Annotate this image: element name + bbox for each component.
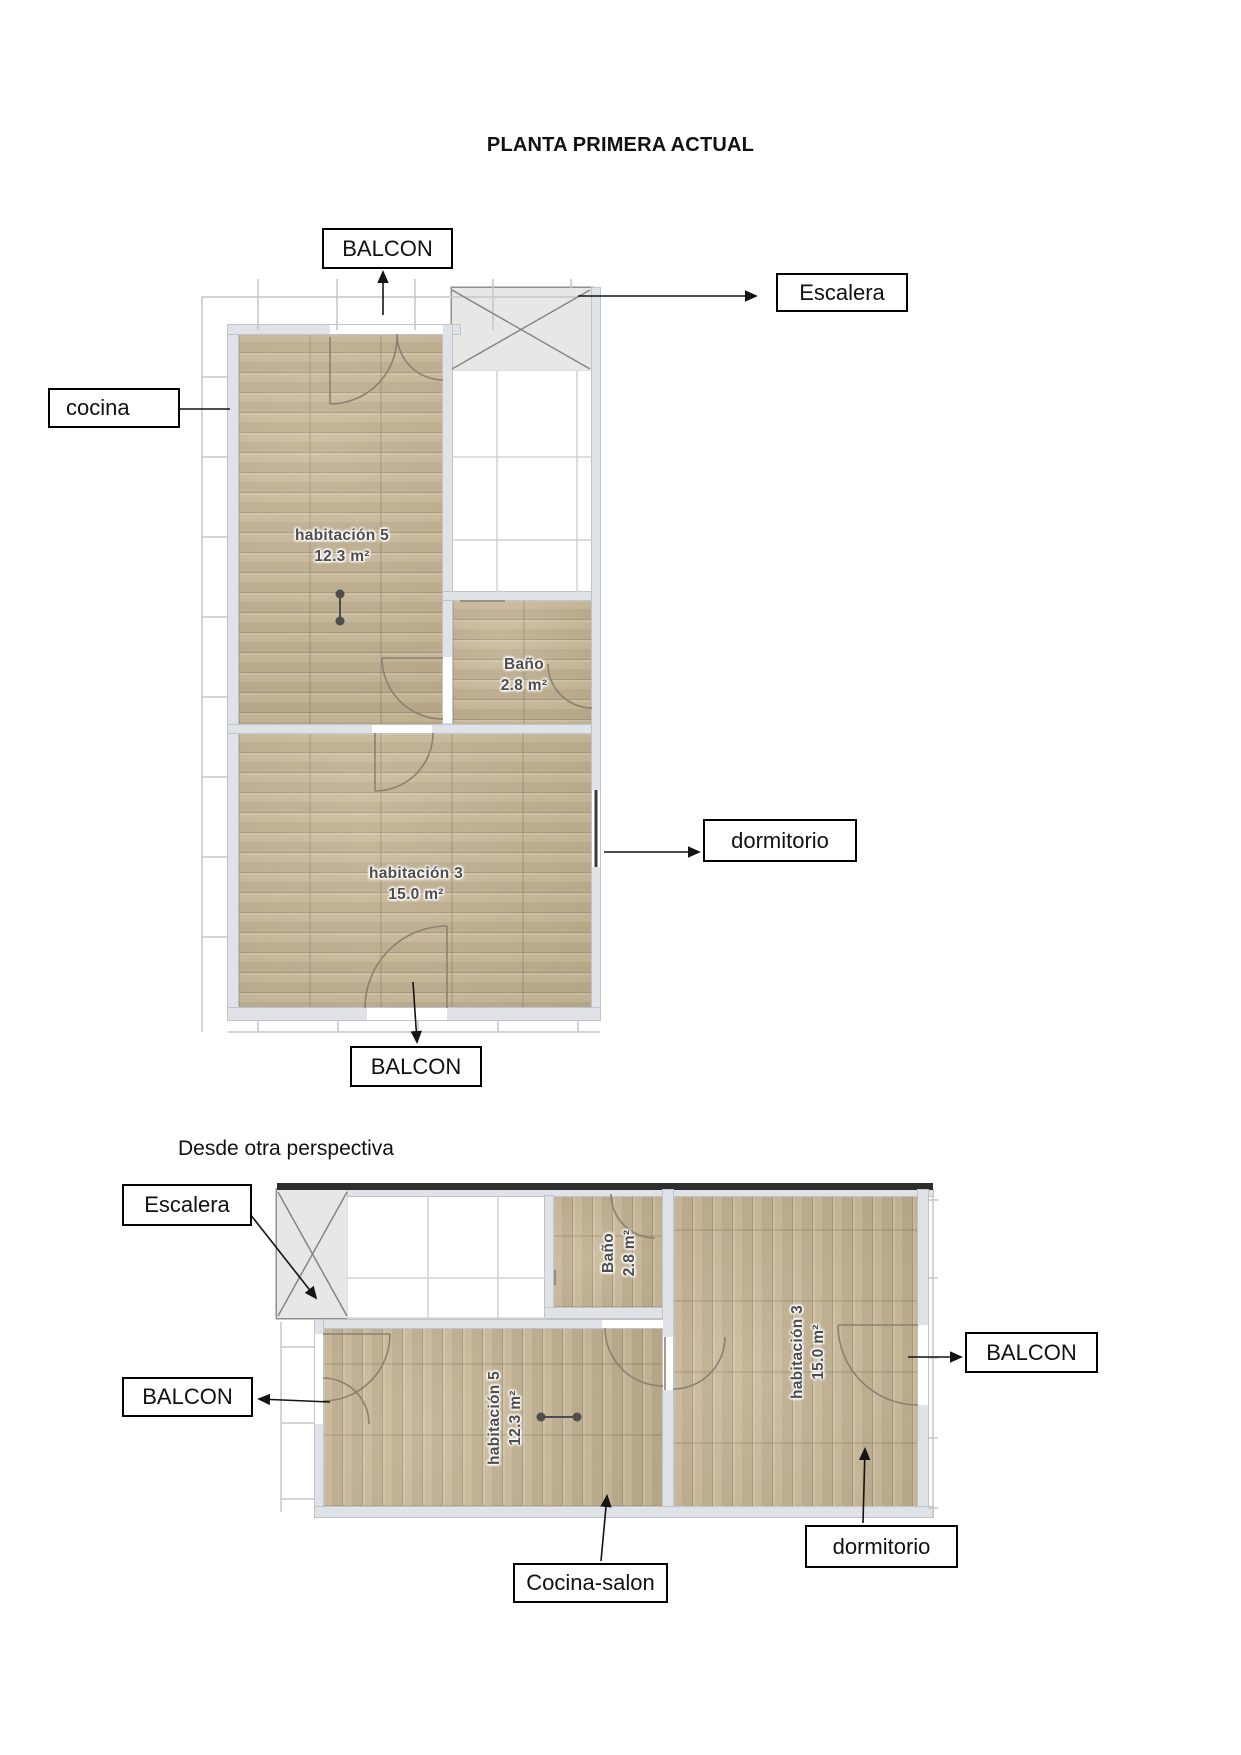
room-area: 2.8 m² (619, 1230, 640, 1277)
room-name: habitación 5 (484, 1371, 505, 1465)
arrow-balcon-left (259, 1399, 330, 1402)
room-name: Baño (501, 654, 548, 675)
room-name: habitación 3 (787, 1305, 808, 1399)
label-box-cocina-salon: Cocina-salon (513, 1563, 668, 1603)
annotation-arrows (180, 272, 961, 1561)
stairs-diagonals-2 (278, 1192, 347, 1316)
room-label-hab3-rotated: habitación 3 15.0 m² (787, 1305, 829, 1399)
label-box-balcon-left: BALCON (122, 1377, 253, 1417)
room-area: 12.3 m² (505, 1371, 526, 1465)
label-box-balcon-right: BALCON (965, 1332, 1098, 1373)
label-box-balcon-top: BALCON (322, 228, 453, 269)
room-area: 15.0 m² (808, 1305, 829, 1399)
stairwell-grid (452, 371, 592, 592)
linework-overlay (0, 0, 1241, 1755)
label-box-dormitorio-plan2: dormitorio (805, 1525, 958, 1568)
room-label-hab3: habitación 3 15.0 m² (369, 863, 463, 905)
room-label-hab5-rotated: habitación 5 12.3 m² (484, 1371, 526, 1465)
room-name: habitación 3 (369, 863, 463, 884)
arrow-balcon-bottom (413, 982, 417, 1042)
room-name: Baño (598, 1230, 619, 1277)
room-label-bano-rotated: Baño 2.8 m² (598, 1230, 640, 1277)
label-box-escalera-plan1: Escalera (776, 273, 908, 312)
light-fixture-plan1 (336, 590, 345, 626)
door-arcs-plan1 (330, 334, 596, 1008)
room-area: 2.8 m² (501, 675, 548, 696)
label-box-cocina: cocina (48, 388, 180, 428)
document-page: PLANTA PRIMERA ACTUAL (0, 0, 1241, 1755)
stairwell-grid-2 (348, 1196, 545, 1318)
label-box-escalera-plan2: Escalera (122, 1184, 252, 1226)
room-label-bano: Baño 2.8 m² (501, 654, 548, 696)
arrow-dormitorio-plan2 (863, 1449, 865, 1523)
room-area: 12.3 m² (295, 546, 389, 567)
room-label-hab5: habitación 5 12.3 m² (295, 525, 389, 567)
room-area: 15.0 m² (369, 884, 463, 905)
stairs-diagonals (452, 290, 590, 369)
light-fixture-plan2 (537, 1413, 582, 1422)
perspective-note: Desde otra perspectiva (178, 1137, 394, 1161)
arrow-escalera-plan2 (250, 1214, 316, 1298)
room-name: habitación 5 (295, 525, 389, 546)
label-box-dormitorio-plan1: dormitorio (703, 819, 857, 862)
label-box-balcon-bottom: BALCON (350, 1046, 482, 1087)
arrow-cocina-salon (601, 1496, 607, 1561)
